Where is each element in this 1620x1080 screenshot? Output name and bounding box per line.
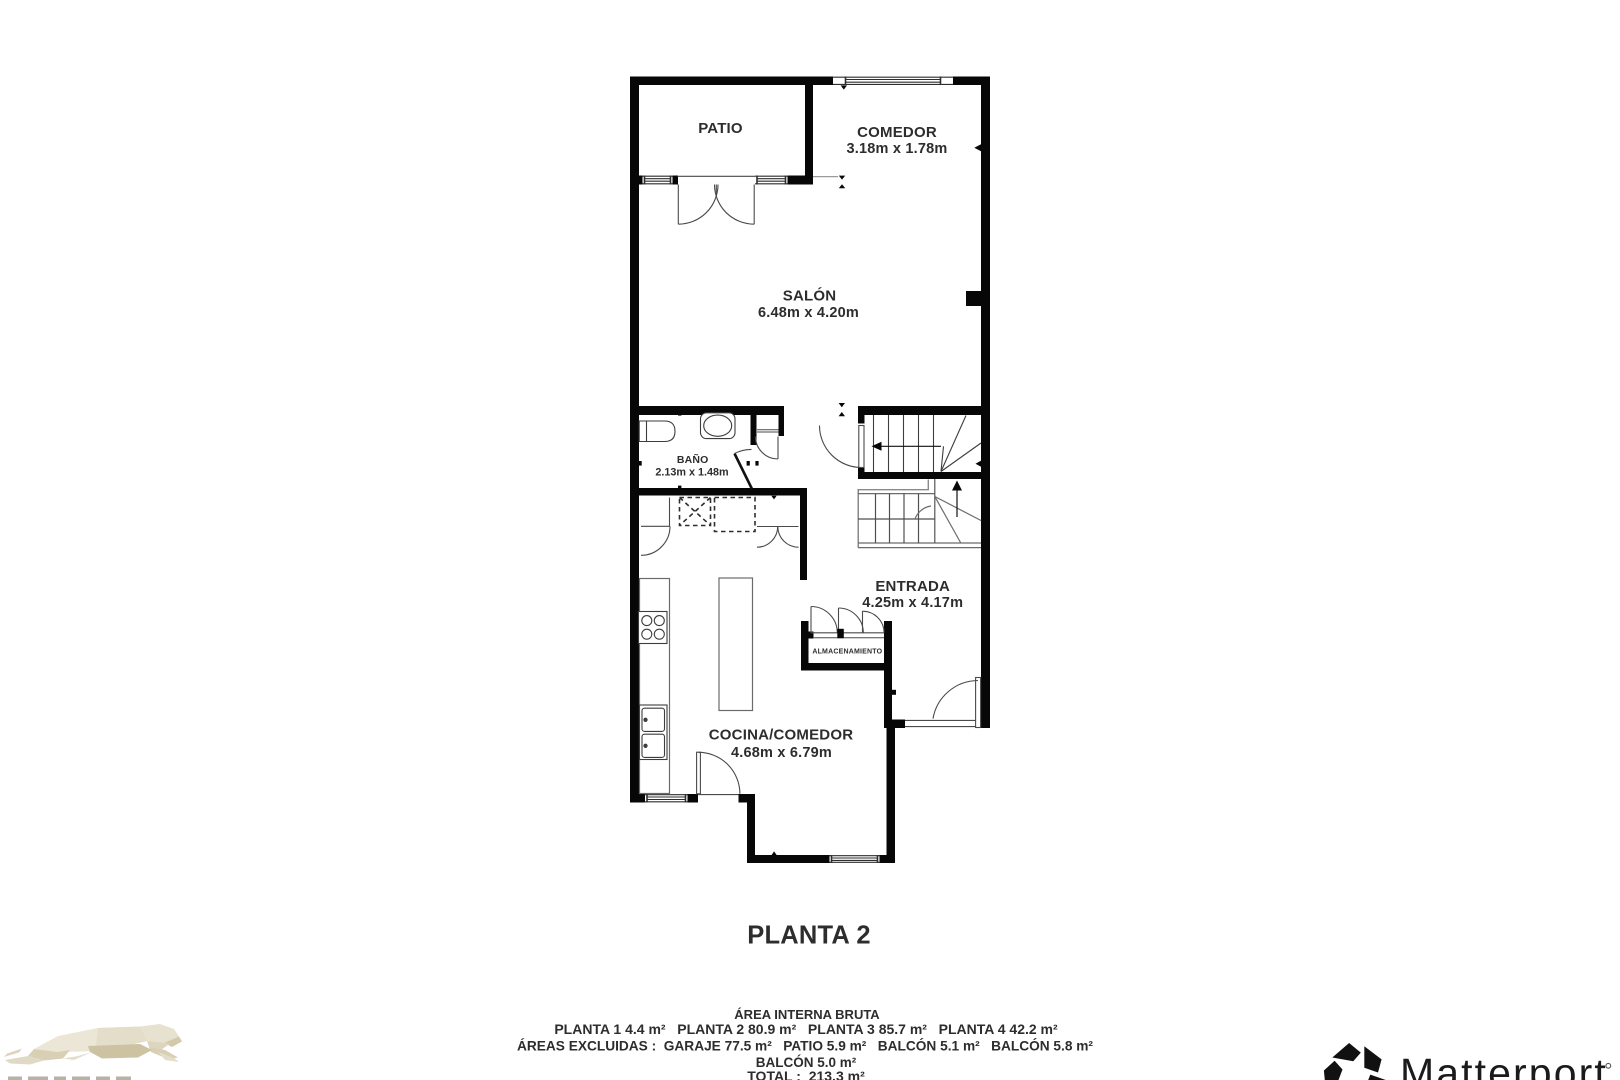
svg-text:PLANTA 2: PLANTA 2 bbox=[747, 922, 870, 950]
svg-text:ÁREA INTERNA BRUTA: ÁREA INTERNA BRUTA bbox=[734, 1007, 880, 1022]
svg-text:2.13m x 1.48m: 2.13m x 1.48m bbox=[655, 467, 728, 479]
svg-text:BAÑO: BAÑO bbox=[677, 453, 709, 466]
svg-text:COCINA/COMEDOR: COCINA/COMEDOR bbox=[709, 727, 853, 744]
svg-text:PATIO: PATIO bbox=[698, 120, 743, 137]
svg-text:ALMACENAMIENTO: ALMACENAMIENTO bbox=[812, 649, 882, 656]
svg-text:4.25m x 4.17m: 4.25m x 4.17m bbox=[862, 595, 963, 611]
svg-text:COMEDOR: COMEDOR bbox=[857, 124, 937, 141]
svg-text:6.48m x 4.20m: 6.48m x 4.20m bbox=[758, 305, 859, 321]
svg-text:ÁREAS EXCLUIDAS : GARAJE 77.5: ÁREAS EXCLUIDAS : GARAJE 77.5 m² PATIO 5… bbox=[517, 1039, 1093, 1054]
svg-text:SALÓN: SALÓN bbox=[783, 287, 837, 305]
svg-text:3.18m x 1.78m: 3.18m x 1.78m bbox=[847, 141, 948, 157]
svg-text:Matterport: Matterport bbox=[1400, 1050, 1608, 1080]
svg-text:PLANTA 1 4.4 m² PLANTA 2 80.: PLANTA 1 4.4 m² PLANTA 2 80.9 m² PLANTA … bbox=[554, 1021, 1058, 1037]
svg-text:TOTAL : 213.3 m²: TOTAL : 213.3 m² bbox=[747, 1068, 865, 1080]
svg-text:4.68m x 6.79m: 4.68m x 6.79m bbox=[731, 745, 832, 761]
svg-text:ENTRADA: ENTRADA bbox=[875, 578, 950, 595]
